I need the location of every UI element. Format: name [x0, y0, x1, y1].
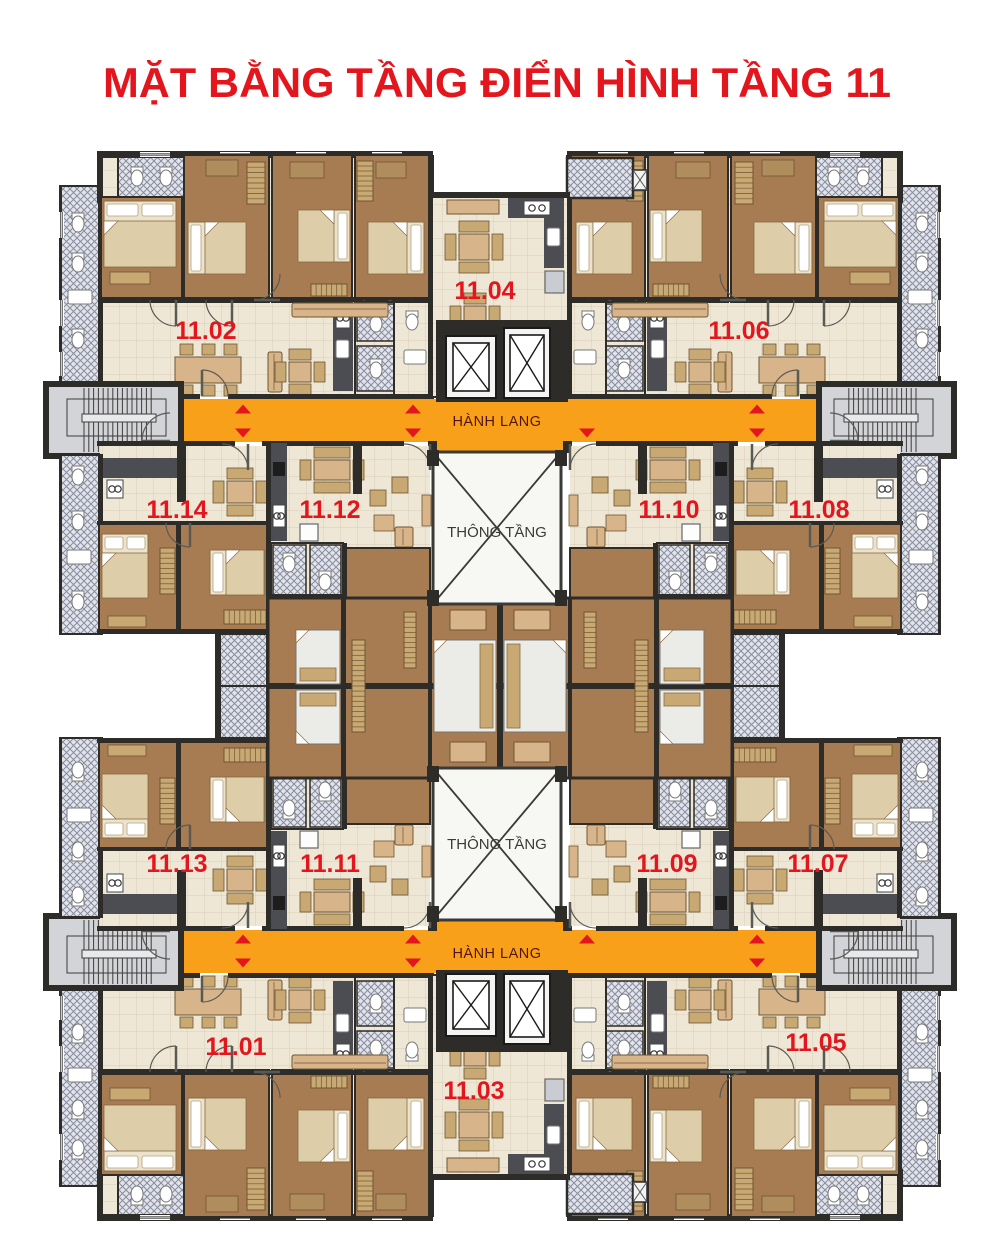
svg-text:11.06: 11.06: [708, 317, 769, 345]
svg-text:MẶT BẰNG TẦNG ĐIỂN HÌNH TẦNG 1: MẶT BẰNG TẦNG ĐIỂN HÌNH TẦNG 11: [103, 58, 891, 106]
svg-text:11.08: 11.08: [788, 496, 849, 524]
svg-text:11.03: 11.03: [443, 1077, 504, 1105]
svg-text:11.05: 11.05: [785, 1029, 846, 1057]
svg-text:11.04: 11.04: [454, 277, 515, 305]
svg-text:11.14: 11.14: [146, 496, 207, 524]
svg-text:11.11: 11.11: [300, 850, 360, 878]
svg-text:THÔNG TẦNG: THÔNG TẦNG: [447, 524, 547, 541]
svg-text:HÀNH LANG: HÀNH LANG: [452, 413, 541, 430]
svg-text:THÔNG TẦNG: THÔNG TẦNG: [447, 836, 547, 853]
svg-text:11.01: 11.01: [205, 1033, 266, 1061]
svg-text:11.09: 11.09: [636, 850, 697, 878]
svg-text:11.13: 11.13: [146, 850, 207, 878]
svg-text:11.10: 11.10: [638, 496, 699, 524]
svg-text:11.02: 11.02: [175, 317, 236, 345]
svg-text:11.12: 11.12: [299, 496, 360, 524]
svg-text:HÀNH LANG: HÀNH LANG: [452, 945, 541, 962]
svg-text:11.07: 11.07: [787, 850, 848, 878]
